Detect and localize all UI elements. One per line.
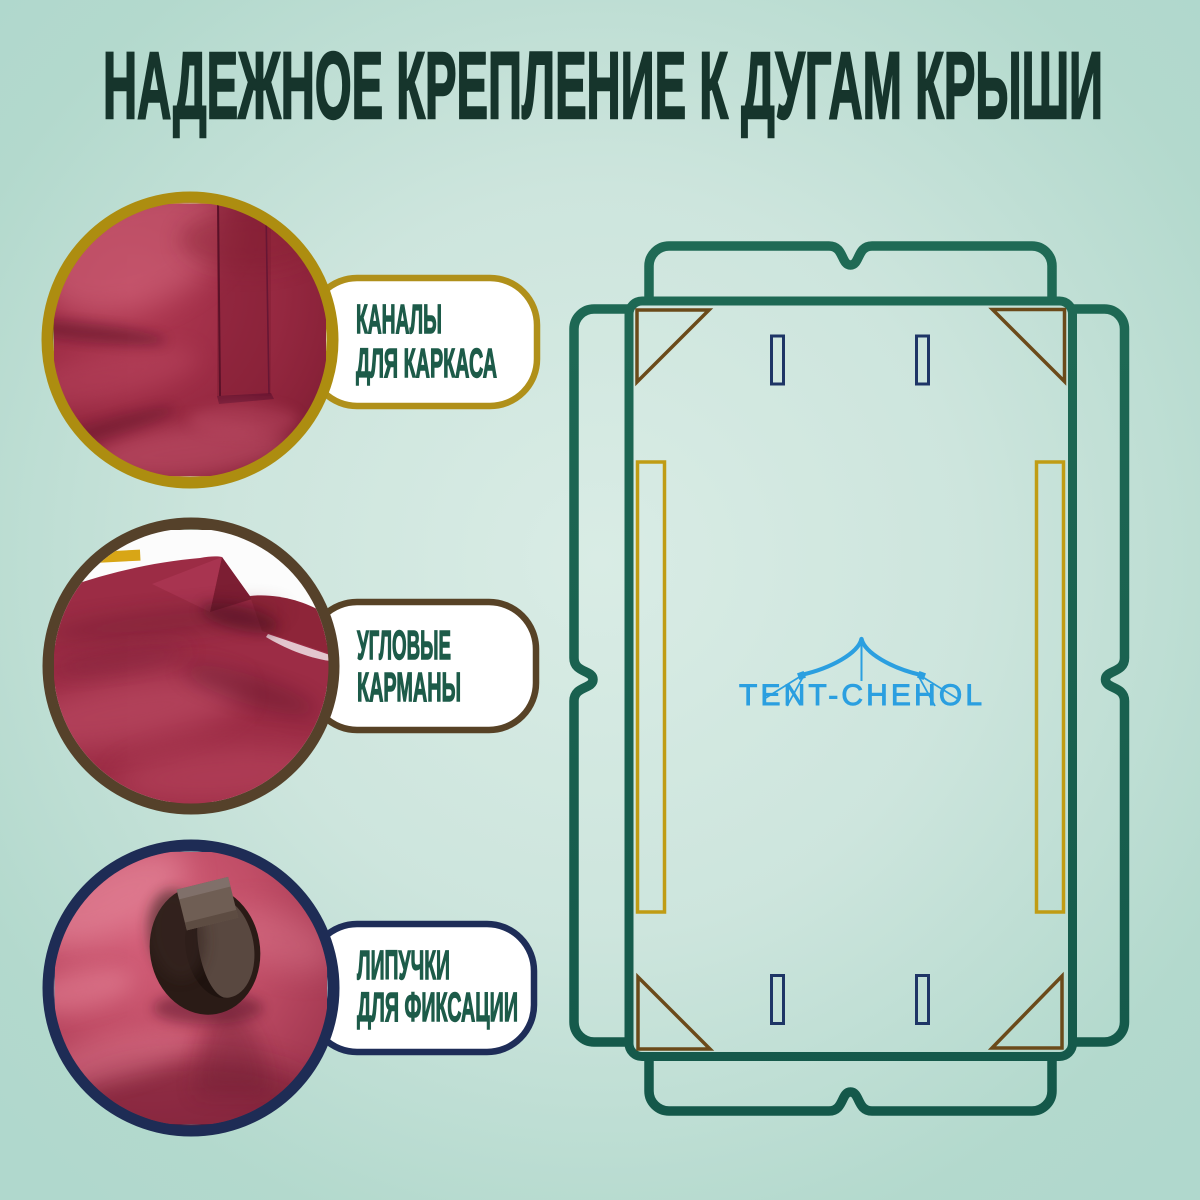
svg-text:ЛИПУЧКИ: ЛИПУЧКИ (357, 942, 450, 988)
svg-text:КАРМАНЫ: КАРМАНЫ (357, 664, 461, 710)
svg-text:НАДЕЖНОЕ КРЕПЛЕНИЕ К ДУГАМ КРЫ: НАДЕЖНОЕ КРЕПЛЕНИЕ К ДУГАМ КРЫШИ (103, 33, 1103, 139)
svg-text:УГЛОВЫЕ: УГЛОВЫЕ (357, 622, 451, 668)
svg-text:КАНАЛЫ: КАНАЛЫ (356, 296, 442, 342)
svg-text:ДЛЯ КАРКАСА: ДЛЯ КАРКАСА (356, 340, 497, 386)
svg-text:TENT-CHEHOL: TENT-CHEHOL (739, 679, 982, 712)
svg-text:ДЛЯ ФИКСАЦИИ: ДЛЯ ФИКСАЦИИ (357, 984, 518, 1030)
